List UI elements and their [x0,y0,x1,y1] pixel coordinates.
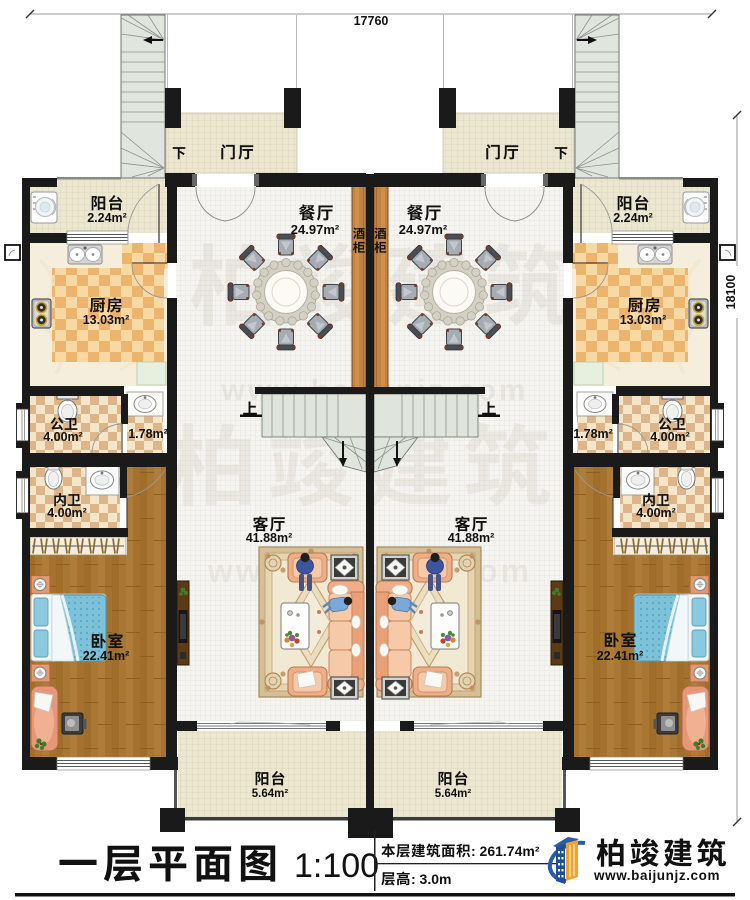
svg-text:www.baijunjz.com: www.baijunjz.com [593,868,720,883]
svg-text:4.00m²: 4.00m² [43,430,83,444]
svg-text:4.00m²: 4.00m² [636,506,676,520]
svg-text:4.00m²: 4.00m² [47,506,87,520]
svg-text:24.97m²: 24.97m² [399,222,448,237]
svg-text:24.97m²: 24.97m² [291,222,340,237]
svg-text:41.88m²: 41.88m² [246,531,293,545]
svg-text:22.41m²: 22.41m² [597,649,644,663]
svg-text:: 261.74m²: : 261.74m² [471,843,540,859]
svg-text:13.03m²: 13.03m² [83,313,130,327]
svg-text:41.88m²: 41.88m² [448,531,495,545]
svg-text:1.78m²: 1.78m² [573,427,613,441]
svg-text:5.64m²: 5.64m² [252,788,289,800]
svg-text:17760: 17760 [354,14,389,28]
svg-text:2.24m²: 2.24m² [87,211,127,225]
svg-text:18100: 18100 [724,275,738,310]
svg-text:4.00m²: 4.00m² [650,430,690,444]
svg-text:22.41m²: 22.41m² [83,649,130,663]
svg-text:2.24m²: 2.24m² [613,211,653,225]
svg-text:1.78m²: 1.78m² [128,427,168,441]
svg-text:13.03m²: 13.03m² [620,313,667,327]
svg-text:: 3.0m: : 3.0m [411,871,451,887]
svg-text:5.64m²: 5.64m² [435,788,472,800]
svg-text:1:100: 1:100 [294,847,379,885]
